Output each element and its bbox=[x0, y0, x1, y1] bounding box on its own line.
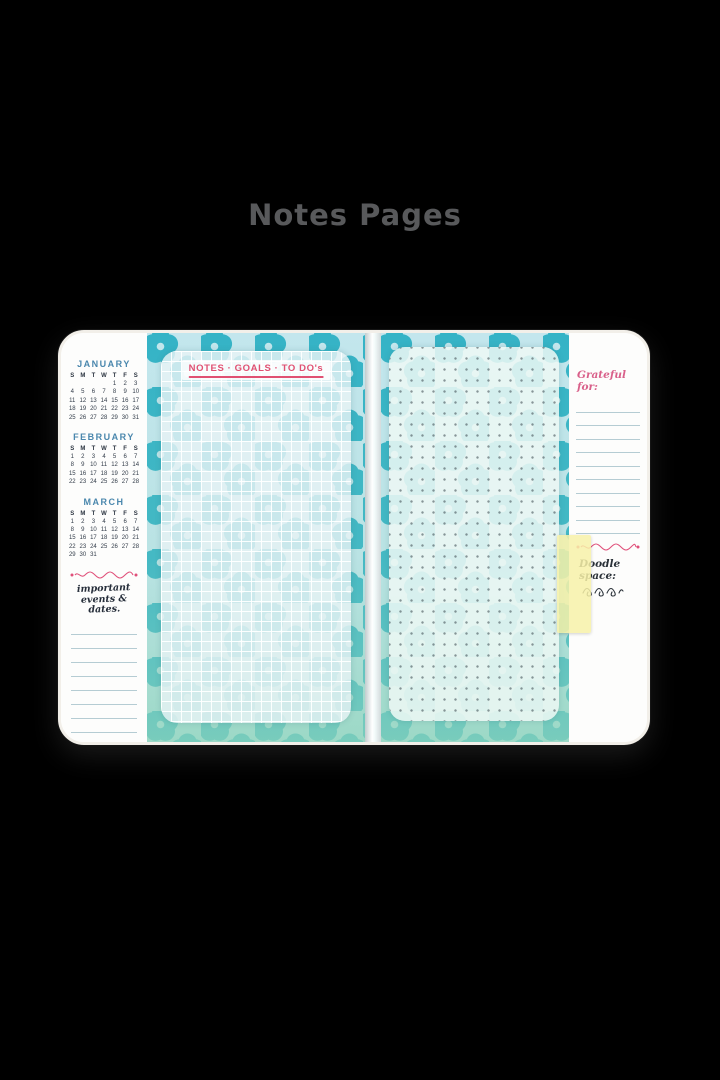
calendar-day-cell: 16 bbox=[120, 397, 131, 405]
important-events-heading: important events & dates. bbox=[71, 583, 136, 617]
calendar-day-cell: 3 bbox=[88, 453, 99, 461]
ruled-line bbox=[71, 649, 137, 663]
month-title: JANUARY bbox=[67, 359, 141, 369]
calendar-day-cell: 12 bbox=[109, 526, 120, 534]
calendar-week-row: 1234567 bbox=[67, 453, 141, 461]
calendar-day-cell: 22 bbox=[67, 543, 78, 551]
ruled-line bbox=[576, 480, 640, 494]
weekday-label: T bbox=[88, 372, 99, 380]
mini-calendar: JANUARYSMTWTFS12345678910111213141516171… bbox=[67, 359, 141, 422]
weekday-label: F bbox=[120, 445, 131, 453]
calendar-day-cell: 19 bbox=[109, 534, 120, 542]
calendar-day-cell bbox=[78, 380, 89, 388]
calendar-week-row: 15161718192021 bbox=[67, 534, 141, 542]
ruled-line bbox=[576, 426, 640, 440]
weekday-label: W bbox=[99, 510, 110, 518]
calendar-day-cell: 9 bbox=[78, 461, 89, 469]
weekday-label: M bbox=[78, 445, 89, 453]
calendar-day-cell: 6 bbox=[120, 518, 131, 526]
calendar-day-cell: 13 bbox=[120, 526, 131, 534]
weekday-label: T bbox=[88, 510, 99, 518]
calendar-day-cell: 10 bbox=[88, 526, 99, 534]
calendar-day-cell: 21 bbox=[99, 405, 110, 413]
squiggle-divider bbox=[69, 570, 139, 580]
month-title: FEBRUARY bbox=[67, 432, 141, 442]
calendar-day-cell: 20 bbox=[120, 470, 131, 478]
ruled-line bbox=[576, 440, 640, 454]
calendar-day-cell: 8 bbox=[109, 388, 120, 396]
weekday-header-row: SMTWTFS bbox=[67, 445, 141, 453]
calendar-day-cell: 29 bbox=[109, 414, 120, 422]
calendar-day-cell: 18 bbox=[99, 470, 110, 478]
calendar-day-cell: 12 bbox=[109, 461, 120, 469]
calendar-day-cell: 4 bbox=[99, 518, 110, 526]
calendar-day-cell: 22 bbox=[67, 478, 78, 486]
calendar-day-cell: 6 bbox=[88, 388, 99, 396]
calendar-day-cell: 30 bbox=[78, 551, 89, 559]
calendar-week-row: 22232425262728 bbox=[67, 478, 141, 486]
calendar-day-cell: 9 bbox=[120, 388, 131, 396]
calendar-week-row: 45678910 bbox=[67, 388, 141, 396]
weekday-label: M bbox=[78, 510, 89, 518]
calendar-day-cell: 20 bbox=[120, 534, 131, 542]
page-title: Notes Pages bbox=[0, 198, 710, 232]
calendar-day-cell: 21 bbox=[130, 534, 141, 542]
weekday-label: S bbox=[130, 372, 141, 380]
vellum-grid-page: NOTES · GOALS · TO DO's bbox=[161, 351, 351, 723]
calendar-day-cell: 9 bbox=[78, 526, 89, 534]
calendar-day-cell: 18 bbox=[67, 405, 78, 413]
ruled-line bbox=[576, 467, 640, 481]
ruled-line bbox=[71, 677, 137, 691]
calendar-day-cell: 31 bbox=[130, 414, 141, 422]
calendar-day-cell: 20 bbox=[88, 405, 99, 413]
weekday-label: T bbox=[109, 372, 120, 380]
weekday-label: F bbox=[120, 372, 131, 380]
calendar-day-cell bbox=[130, 551, 141, 559]
calendar-day-cell: 4 bbox=[99, 453, 110, 461]
calendar-day-cell: 11 bbox=[99, 526, 110, 534]
calendar-day-cell: 3 bbox=[130, 380, 141, 388]
calendar-week-row: 891011121314 bbox=[67, 461, 141, 469]
weekday-label: S bbox=[67, 372, 78, 380]
calendar-day-cell: 29 bbox=[67, 551, 78, 559]
calendar-day-cell: 24 bbox=[130, 405, 141, 413]
calendar-day-cell: 12 bbox=[78, 397, 89, 405]
calendar-week-row: 1234567 bbox=[67, 518, 141, 526]
calendar-day-cell: 25 bbox=[99, 543, 110, 551]
calendar-day-cell: 17 bbox=[88, 470, 99, 478]
calendar-day-cell: 28 bbox=[99, 414, 110, 422]
calendar-day-cell: 14 bbox=[99, 397, 110, 405]
calendar-day-cell bbox=[99, 551, 110, 559]
calendar-day-cell: 15 bbox=[109, 397, 120, 405]
weekday-label: T bbox=[109, 510, 120, 518]
calendar-day-cell: 13 bbox=[88, 397, 99, 405]
notes-goals-todos-text: NOTES · GOALS · TO DO's bbox=[189, 363, 324, 374]
weekday-label: W bbox=[99, 372, 110, 380]
calendar-day-cell: 24 bbox=[88, 478, 99, 486]
calendar-week-row: 123 bbox=[67, 380, 141, 388]
weekday-label: S bbox=[67, 510, 78, 518]
ruled-line bbox=[576, 453, 640, 467]
events-ruled-lines bbox=[71, 621, 137, 745]
calendar-day-cell: 5 bbox=[78, 388, 89, 396]
open-notebook: JANUARYSMTWTFS12345678910111213141516171… bbox=[58, 330, 650, 745]
calendar-day-cell: 19 bbox=[109, 470, 120, 478]
calendar-day-cell bbox=[88, 380, 99, 388]
weekday-label: W bbox=[99, 445, 110, 453]
calendar-day-cell: 27 bbox=[88, 414, 99, 422]
calendar-day-cell: 27 bbox=[120, 543, 131, 551]
calendar-day-cell: 3 bbox=[88, 518, 99, 526]
calendar-day-cell: 14 bbox=[130, 461, 141, 469]
grateful-ruled-lines bbox=[576, 399, 640, 534]
calendar-day-cell: 17 bbox=[88, 534, 99, 542]
calendar-day-cell: 26 bbox=[109, 543, 120, 551]
calendar-day-cell: 23 bbox=[120, 405, 131, 413]
ruled-line bbox=[576, 413, 640, 427]
calendar-day-cell: 15 bbox=[67, 470, 78, 478]
ruled-line bbox=[71, 719, 137, 733]
weekday-label: S bbox=[67, 445, 78, 453]
ruled-line bbox=[576, 399, 640, 413]
calendar-day-cell: 27 bbox=[120, 478, 131, 486]
calendar-day-cell bbox=[67, 380, 78, 388]
calendar-day-cell: 19 bbox=[78, 405, 89, 413]
calendar-stack: JANUARYSMTWTFS12345678910111213141516171… bbox=[61, 359, 147, 560]
ruled-line bbox=[576, 494, 640, 508]
grateful-for-heading: Grateful for: bbox=[577, 369, 647, 393]
weekday-label: F bbox=[120, 510, 131, 518]
calendar-day-cell: 16 bbox=[78, 534, 89, 542]
ruled-line bbox=[71, 621, 137, 635]
calendar-day-cell: 10 bbox=[88, 461, 99, 469]
calendar-week-row: 18192021222324 bbox=[67, 405, 141, 413]
ruled-line bbox=[71, 691, 137, 705]
weekday-label: S bbox=[130, 445, 141, 453]
calendar-day-cell: 17 bbox=[130, 397, 141, 405]
notes-goals-todos-label: NOTES · GOALS · TO DO's bbox=[182, 360, 331, 380]
calendar-day-cell: 25 bbox=[67, 414, 78, 422]
calendar-day-cell: 8 bbox=[67, 526, 78, 534]
calendar-day-cell: 8 bbox=[67, 461, 78, 469]
notes-label-underline bbox=[189, 376, 324, 378]
calendar-day-cell: 30 bbox=[120, 414, 131, 422]
left-calendar-page: JANUARYSMTWTFS12345678910111213141516171… bbox=[61, 333, 147, 742]
notebook-spine bbox=[365, 333, 381, 742]
calendar-day-cell bbox=[99, 380, 110, 388]
calendar-week-row: 15161718192021 bbox=[67, 470, 141, 478]
calendar-day-cell: 28 bbox=[130, 543, 141, 551]
calendar-day-cell: 5 bbox=[109, 518, 120, 526]
calendar-day-cell: 1 bbox=[109, 380, 120, 388]
calendar-day-cell: 7 bbox=[99, 388, 110, 396]
calendar-day-cell: 13 bbox=[120, 461, 131, 469]
ruled-line bbox=[71, 635, 137, 649]
calendar-day-cell: 31 bbox=[88, 551, 99, 559]
calendar-day-cell: 5 bbox=[109, 453, 120, 461]
calendar-day-cell: 23 bbox=[78, 543, 89, 551]
weekday-label: T bbox=[88, 445, 99, 453]
calendar-day-cell: 11 bbox=[99, 461, 110, 469]
weekday-label: M bbox=[78, 372, 89, 380]
calendar-day-cell bbox=[120, 551, 131, 559]
mini-calendar: MARCHSMTWTFS1234567891011121314151617181… bbox=[67, 497, 141, 560]
calendar-day-cell: 26 bbox=[109, 478, 120, 486]
ruled-line bbox=[576, 521, 640, 535]
calendar-day-cell: 7 bbox=[130, 453, 141, 461]
ruled-line bbox=[71, 733, 137, 745]
ruled-line bbox=[71, 705, 137, 719]
month-title: MARCH bbox=[67, 497, 141, 507]
calendar-day-cell: 7 bbox=[130, 518, 141, 526]
calendar-week-row: 891011121314 bbox=[67, 526, 141, 534]
ruled-line bbox=[71, 663, 137, 677]
calendar-day-cell: 2 bbox=[78, 518, 89, 526]
calendar-day-cell: 1 bbox=[67, 518, 78, 526]
calendar-day-cell: 11 bbox=[67, 397, 78, 405]
weekday-label: T bbox=[109, 445, 120, 453]
calendar-day-cell: 2 bbox=[120, 380, 131, 388]
weekday-header-row: SMTWTFS bbox=[67, 372, 141, 380]
calendar-day-cell: 22 bbox=[109, 405, 120, 413]
calendar-week-row: 25262728293031 bbox=[67, 414, 141, 422]
ruled-line bbox=[576, 507, 640, 521]
calendar-day-cell: 6 bbox=[120, 453, 131, 461]
calendar-day-cell: 16 bbox=[78, 470, 89, 478]
calendar-day-cell: 1 bbox=[67, 453, 78, 461]
calendar-day-cell: 23 bbox=[78, 478, 89, 486]
calendar-day-cell: 18 bbox=[99, 534, 110, 542]
mini-calendar: FEBRUARYSMTWTFS1234567891011121314151617… bbox=[67, 432, 141, 487]
weekday-header-row: SMTWTFS bbox=[67, 510, 141, 518]
calendar-day-cell: 10 bbox=[130, 388, 141, 396]
calendar-day-cell: 14 bbox=[130, 526, 141, 534]
calendar-day-cell: 28 bbox=[130, 478, 141, 486]
calendar-day-cell: 25 bbox=[99, 478, 110, 486]
calendar-week-row: 11121314151617 bbox=[67, 397, 141, 405]
calendar-day-cell: 4 bbox=[67, 388, 78, 396]
calendar-day-cell: 2 bbox=[78, 453, 89, 461]
calendar-week-row: 293031 bbox=[67, 551, 141, 559]
vellum-dot-grid-page bbox=[389, 347, 559, 721]
calendar-day-cell: 21 bbox=[130, 470, 141, 478]
calendar-day-cell: 24 bbox=[88, 543, 99, 551]
calendar-day-cell: 15 bbox=[67, 534, 78, 542]
calendar-week-row: 22232425262728 bbox=[67, 543, 141, 551]
calendar-day-cell: 26 bbox=[78, 414, 89, 422]
weekday-label: S bbox=[130, 510, 141, 518]
yellow-sticky-tab bbox=[557, 535, 591, 633]
calendar-day-cell bbox=[109, 551, 120, 559]
